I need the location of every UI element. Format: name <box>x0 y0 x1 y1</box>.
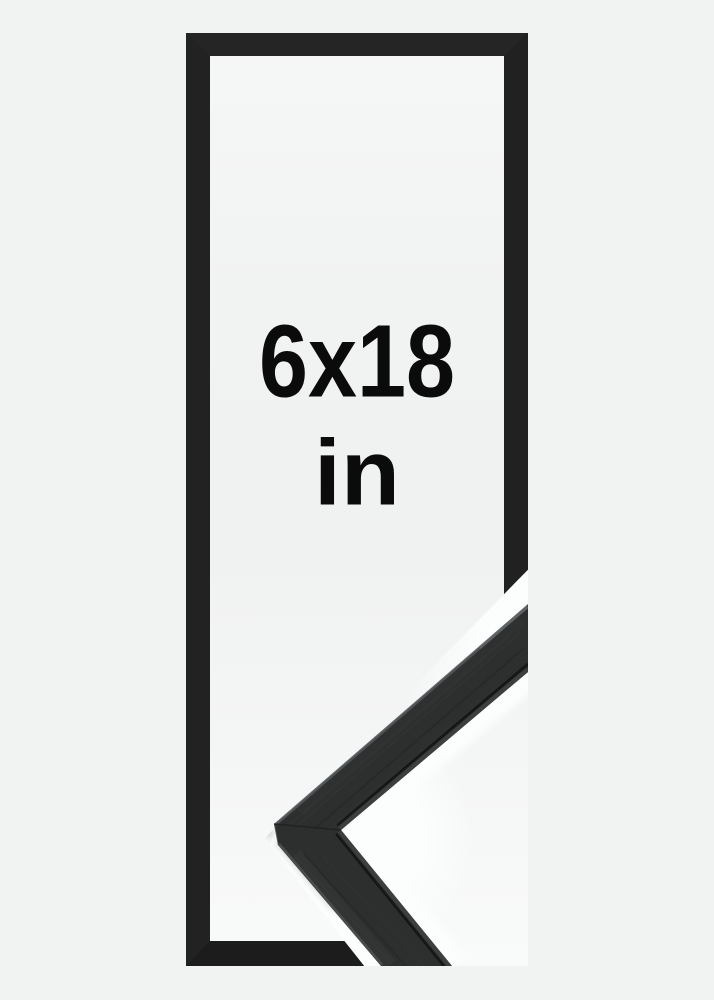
svg-text:6x18: 6x18 <box>259 304 455 419</box>
svg-text:in: in <box>314 421 400 525</box>
